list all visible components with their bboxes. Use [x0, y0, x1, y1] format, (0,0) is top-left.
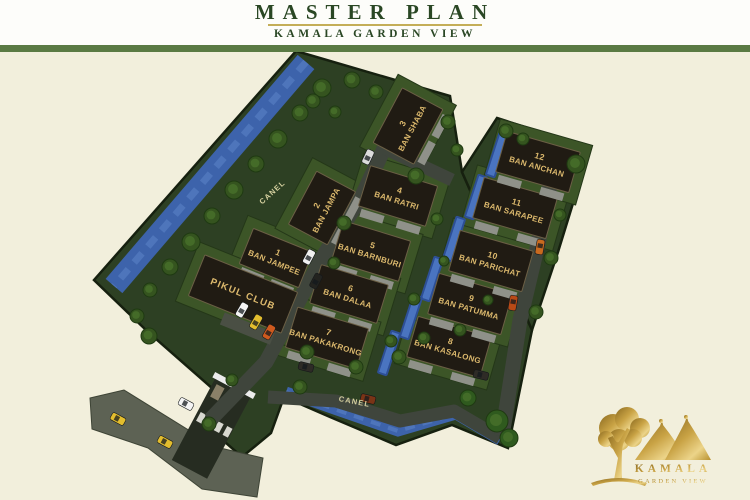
tree-highlight [387, 337, 394, 344]
tree [182, 233, 200, 251]
tree [554, 209, 566, 221]
tree-highlight [347, 75, 356, 84]
tree [408, 293, 420, 305]
tree [369, 85, 383, 99]
logo-name: KAMALA [635, 463, 711, 475]
tree-highlight [394, 352, 402, 360]
tree-highlight [339, 218, 347, 226]
tree [418, 332, 430, 344]
tree-highlight [453, 146, 460, 153]
tree-highlight [331, 108, 338, 115]
car-windshield [510, 299, 516, 304]
tree [226, 374, 238, 386]
palm-tree [486, 410, 508, 432]
tree-highlight [316, 82, 326, 92]
tree [162, 259, 178, 275]
palm-tree [500, 429, 518, 447]
tree-highlight [185, 236, 195, 246]
header: MASTER PLAN KAMALA GARDEN VIEW [0, 0, 750, 52]
tree-highlight [272, 133, 282, 143]
page-subtitle: KAMALA GARDEN VIEW [0, 28, 750, 40]
tree-highlight [519, 135, 526, 142]
tree [349, 360, 363, 374]
tree-highlight [531, 307, 539, 315]
tree-highlight [371, 87, 379, 95]
tree [293, 380, 307, 394]
tree [300, 345, 314, 359]
palm-tree [460, 390, 476, 406]
tree [431, 213, 443, 225]
tree-highlight [295, 108, 304, 117]
tree-highlight [410, 295, 417, 302]
tree [544, 251, 558, 265]
tree-highlight [443, 117, 451, 125]
tree-highlight [204, 419, 212, 427]
tree [483, 295, 493, 305]
tree-highlight [228, 376, 235, 383]
tree [306, 94, 320, 108]
tree [202, 417, 216, 431]
tree-highlight [501, 126, 509, 134]
tree-highlight [503, 432, 513, 442]
tree [143, 283, 157, 297]
tree [225, 181, 243, 199]
tree [248, 156, 264, 172]
tree [292, 105, 308, 121]
tree [329, 106, 341, 118]
tree [344, 72, 360, 88]
tree-highlight [570, 158, 580, 168]
brand-logo: KAMALA GARDEN VIEW [585, 388, 740, 496]
master-plan-page: MASTER PLAN KAMALA GARDEN VIEW 1BAN JAMP… [0, 0, 750, 500]
tree-highlight [228, 184, 238, 194]
tree-highlight [330, 259, 337, 266]
tree-highlight [556, 211, 563, 218]
tree-highlight [132, 311, 140, 319]
page-title: MASTER PLAN [0, 0, 750, 23]
tree [141, 328, 157, 344]
tree [337, 216, 351, 230]
tree [439, 256, 449, 266]
car-windshield [537, 243, 543, 248]
tree-highlight [351, 362, 359, 370]
header-divider-bar [0, 45, 750, 52]
tree-highlight [207, 211, 216, 220]
tree-highlight [463, 393, 472, 402]
tree [529, 305, 543, 319]
tree-highlight [144, 331, 153, 340]
tree-highlight [420, 334, 427, 341]
tree [130, 309, 144, 323]
title-underline [268, 24, 482, 26]
tree-highlight [456, 326, 463, 333]
tree-highlight [251, 159, 260, 168]
car [178, 397, 195, 411]
tree [204, 208, 220, 224]
tree-highlight [145, 285, 153, 293]
tree-highlight [411, 171, 420, 180]
tree [328, 257, 340, 269]
tree [385, 335, 397, 347]
tree-highlight [484, 296, 490, 302]
tree [441, 115, 455, 129]
logo-subtitle: GARDEN VIEW [638, 478, 708, 485]
tree [567, 155, 585, 173]
tree [408, 168, 424, 184]
tree-highlight [308, 96, 316, 104]
tree-highlight [440, 257, 446, 263]
tree [499, 124, 513, 138]
tree [392, 350, 406, 364]
tree-highlight [165, 262, 174, 271]
tree [454, 324, 466, 336]
tree-highlight [433, 215, 440, 222]
tree-highlight [490, 414, 502, 426]
tree [517, 133, 529, 145]
tree-highlight [546, 253, 554, 261]
tree-highlight [295, 382, 303, 390]
tree-highlight [302, 347, 310, 355]
tree [269, 130, 287, 148]
tree [451, 144, 463, 156]
